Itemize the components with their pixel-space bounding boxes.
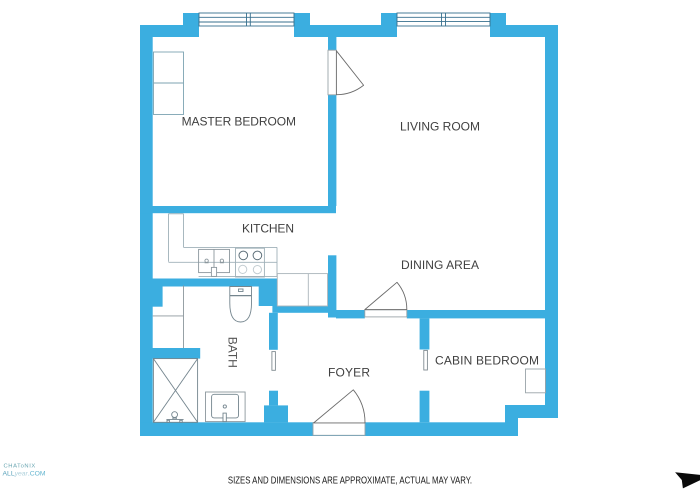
svg-text:BATH: BATH: [225, 337, 239, 368]
svg-text:ALLyear.COM: ALLyear.COM: [3, 471, 46, 478]
svg-text:LIVING ROOM: LIVING ROOM: [400, 120, 480, 134]
svg-text:CHAToNIX: CHAToNIX: [4, 463, 36, 469]
svg-text:CABIN BEDROOM: CABIN BEDROOM: [435, 354, 539, 368]
svg-text:SIZES AND DIMENSIONS ARE APPRO: SIZES AND DIMENSIONS ARE APPROXIMATE, AC…: [228, 476, 472, 487]
svg-text:DINING AREA: DINING AREA: [401, 258, 479, 272]
svg-text:FOYER: FOYER: [328, 366, 370, 380]
svg-text:MASTER BEDROOM: MASTER BEDROOM: [182, 114, 296, 128]
svg-text:KITCHEN: KITCHEN: [242, 222, 294, 236]
